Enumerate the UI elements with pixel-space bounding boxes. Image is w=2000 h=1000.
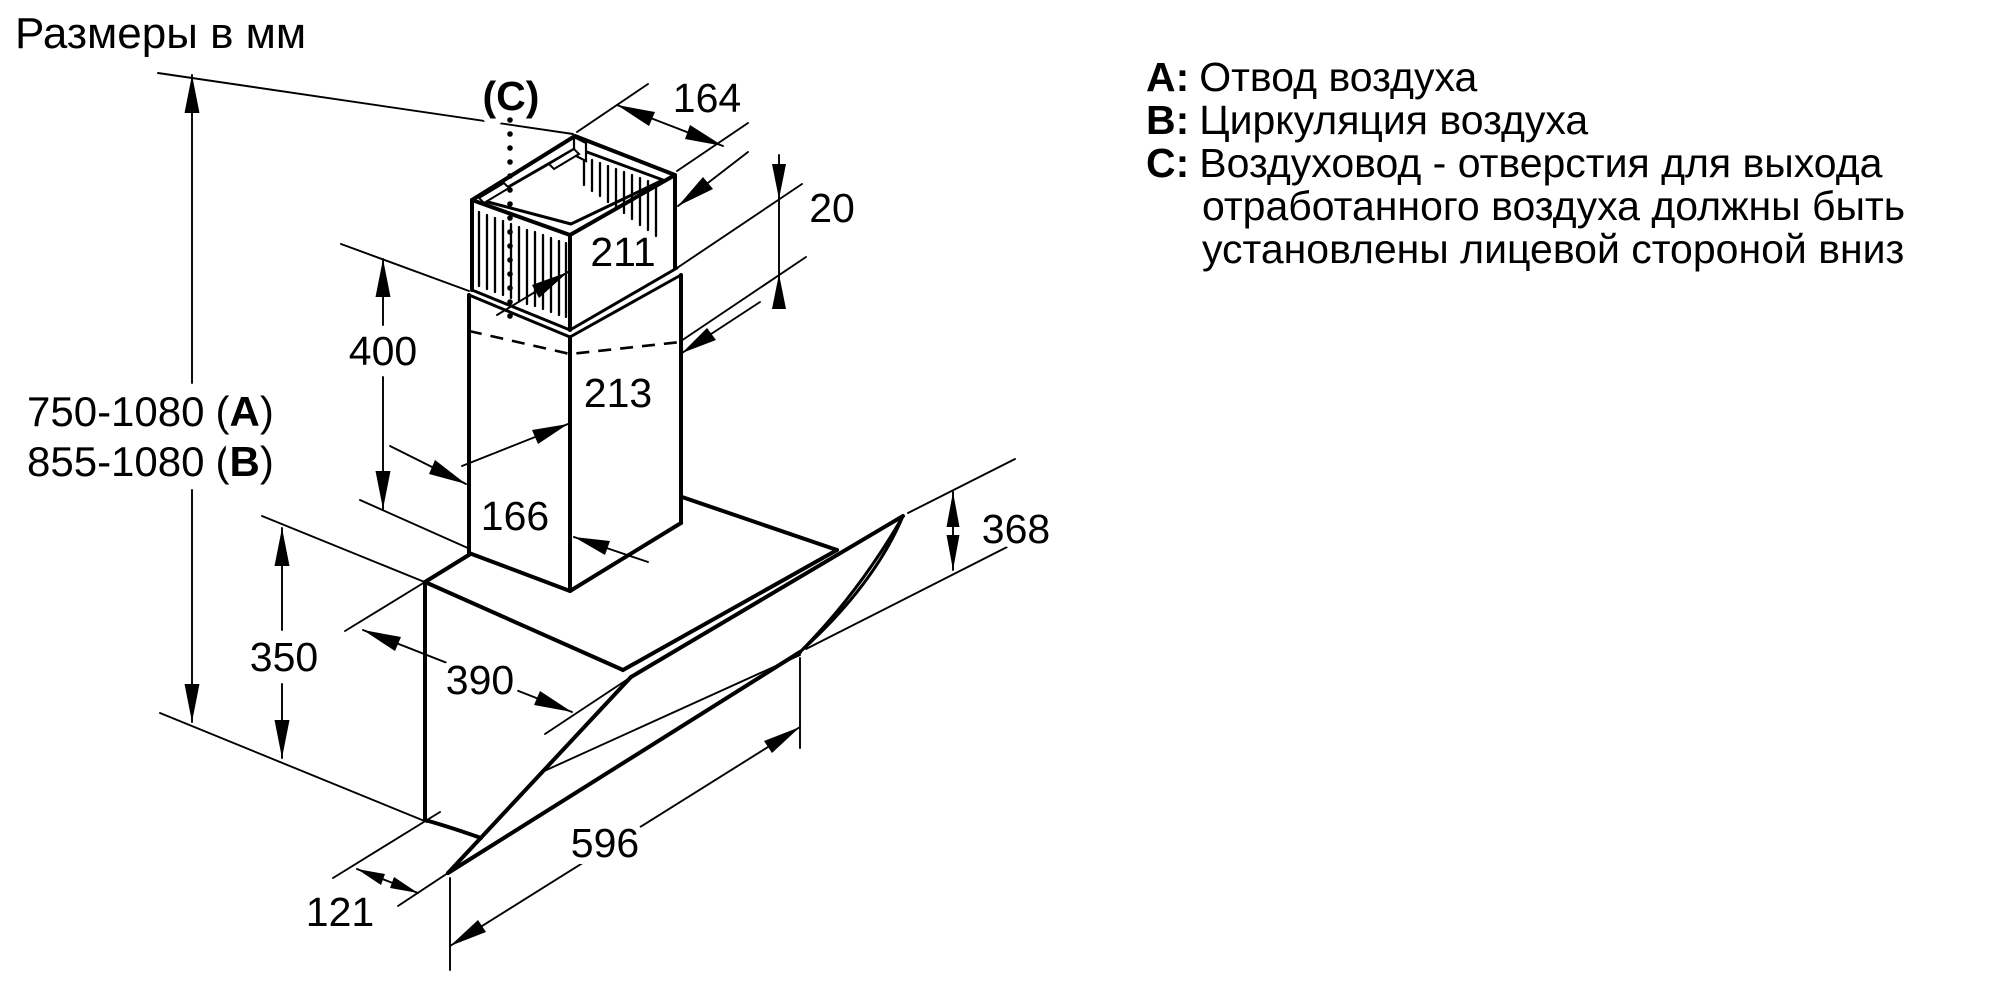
dim-label-20: 20 [809,185,855,231]
dim-label-368: 368 [982,506,1050,552]
dim-label-wall-range-a: 750-1080(A) [27,388,274,435]
legend-letter-c: C: [1146,140,1199,186]
manual-dimensions-page: Размеры в мм (C) 164 20 211 400 213 166 … [0,0,2000,1000]
legend-text-c: Воздуховод - отверстия для выхода отрабо… [1199,140,1905,272]
dim-label-213: 213 [584,370,652,416]
dim-label-596: 596 [571,820,639,866]
dim-label-211: 211 [590,229,655,275]
legend-item-c: C:Воздуховод - отверстия для выхода отра… [1146,142,1958,271]
duct-label-c: (C) [483,73,540,119]
legend: A:Отвод воздуха B:Циркуляция воздуха C:В… [1146,56,1958,271]
legend-text-a: Отвод воздуха [1199,54,1477,100]
dim-label-166: 166 [481,493,549,539]
duct-axis-dotted-line [507,117,513,319]
legend-item-a: A:Отвод воздуха [1146,56,1958,99]
dim-label-121: 121 [306,889,374,935]
legend-text-b: Циркуляция воздуха [1199,97,1588,143]
legend-item-b: B:Циркуляция воздуха [1146,99,1958,142]
dim-label-wall-range-b: 855-1080(B) [27,438,274,485]
dim-label-400: 400 [349,328,417,374]
dim-label-350: 350 [250,634,318,680]
legend-letter-a: A: [1146,54,1199,100]
dim-label-390: 390 [446,657,514,703]
dim-label-164: 164 [673,75,741,121]
legend-letter-b: B: [1146,97,1199,143]
page-title: Размеры в мм [15,9,306,58]
